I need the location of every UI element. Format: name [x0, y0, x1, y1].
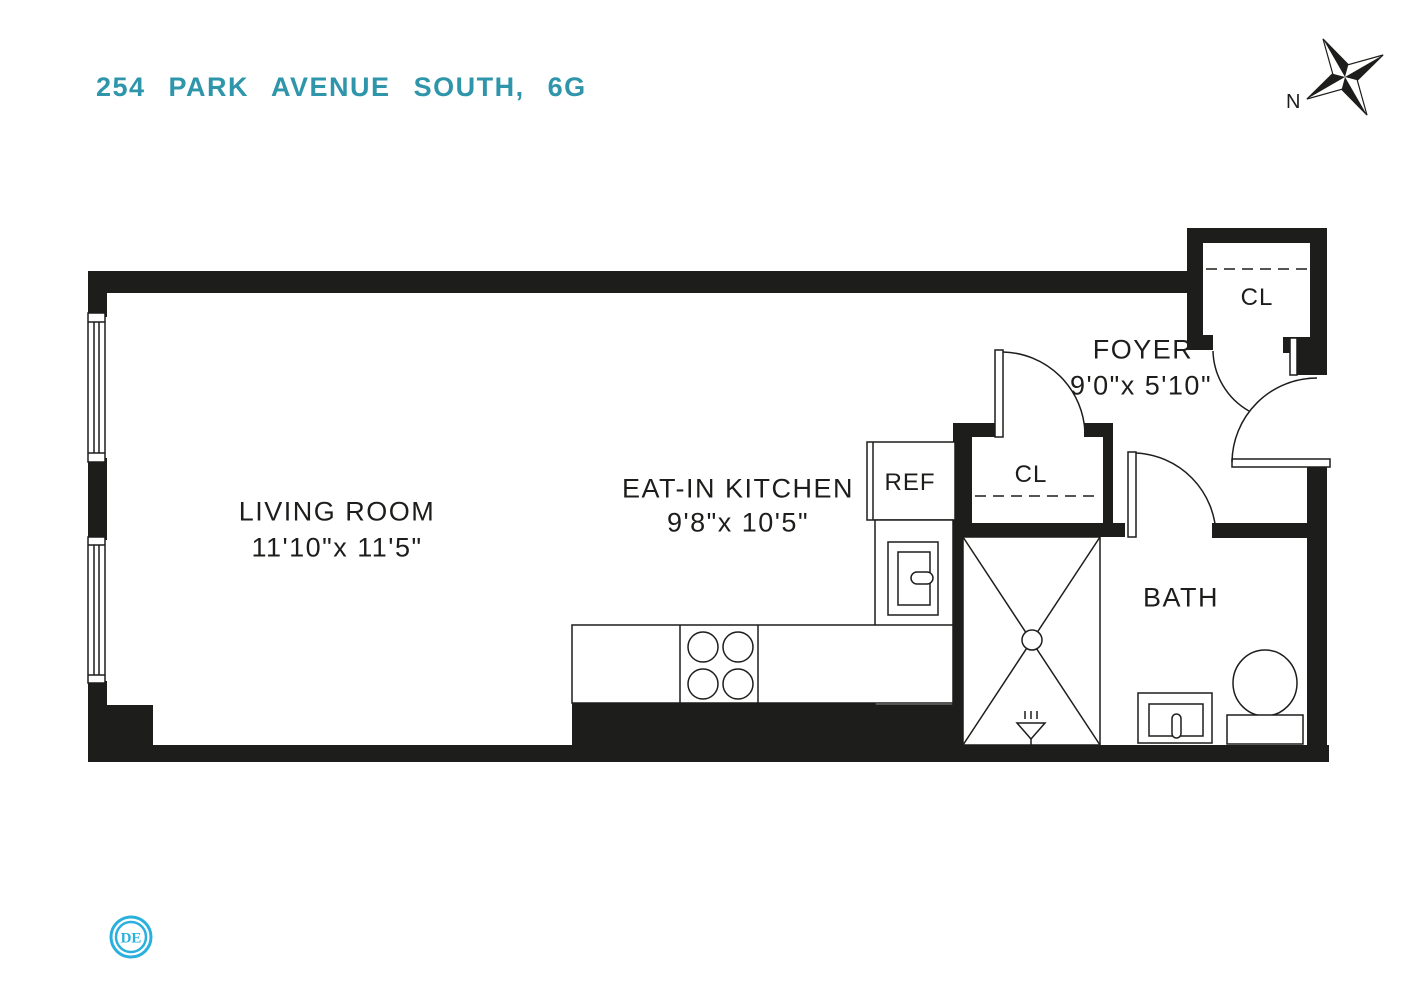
door-entry — [1232, 378, 1330, 467]
foyer-dimensions: 9'0"x 5'10" — [1070, 371, 1212, 402]
north-arrow-icon — [1285, 17, 1405, 137]
shower-drain-icon — [1017, 711, 1045, 746]
living-room-label: LIVING ROOM — [239, 497, 436, 528]
wall-shower-left — [953, 537, 963, 707]
wall-step-bottom-left — [107, 705, 153, 747]
north-label: N — [1286, 91, 1300, 114]
kitchen-label: EAT-IN KITCHEN — [622, 474, 854, 505]
sink-vanity — [1138, 693, 1212, 743]
page-title: 254 PARK AVENUE SOUTH, 6G — [96, 72, 587, 103]
window-2 — [88, 537, 105, 683]
bath-label: BATH — [1143, 583, 1219, 614]
floorplan-page: DE 254 PARK AVENUE SOUTH, 6G N LIVING RO… — [0, 0, 1415, 1000]
closet-top-right-label: CL — [1241, 284, 1274, 312]
footer: DouglasElliman EST. 1911 REAL ESTATE Ren… — [0, 888, 1415, 978]
wall-right-lower — [1307, 467, 1327, 762]
refrigerator-label: REF — [885, 469, 936, 497]
wall-bath-top — [1212, 523, 1307, 538]
wall-kitchen-right — [953, 423, 972, 537]
oven-symbol — [888, 542, 938, 615]
toilet — [1227, 650, 1303, 744]
door-bath — [1128, 452, 1216, 537]
closet-middle-label: CL — [1015, 461, 1048, 489]
living-room-dimensions: 11'10"x 11'5" — [251, 533, 422, 564]
wall-left-lower — [88, 681, 107, 747]
wall-cl-mid-right — [1103, 423, 1113, 537]
wall-cl-top — [1187, 228, 1327, 243]
wall-left-between-windows — [88, 458, 107, 540]
wall-cl-mid-bottom — [953, 523, 1125, 537]
wall-cl-mid-top-left — [953, 423, 995, 437]
kitchen-dimensions: 9'8"x 10'5" — [667, 508, 809, 539]
wall-under-counter — [572, 703, 963, 747]
wall-right-upper — [1310, 228, 1327, 375]
window-1 — [88, 313, 105, 462]
wall-entry-jamb — [1297, 353, 1310, 375]
wall-bottom — [88, 745, 1329, 762]
foyer-label: FOYER — [1093, 335, 1194, 366]
shower — [963, 537, 1100, 746]
wall-left-upper — [88, 271, 107, 317]
wall-top — [88, 271, 1187, 293]
